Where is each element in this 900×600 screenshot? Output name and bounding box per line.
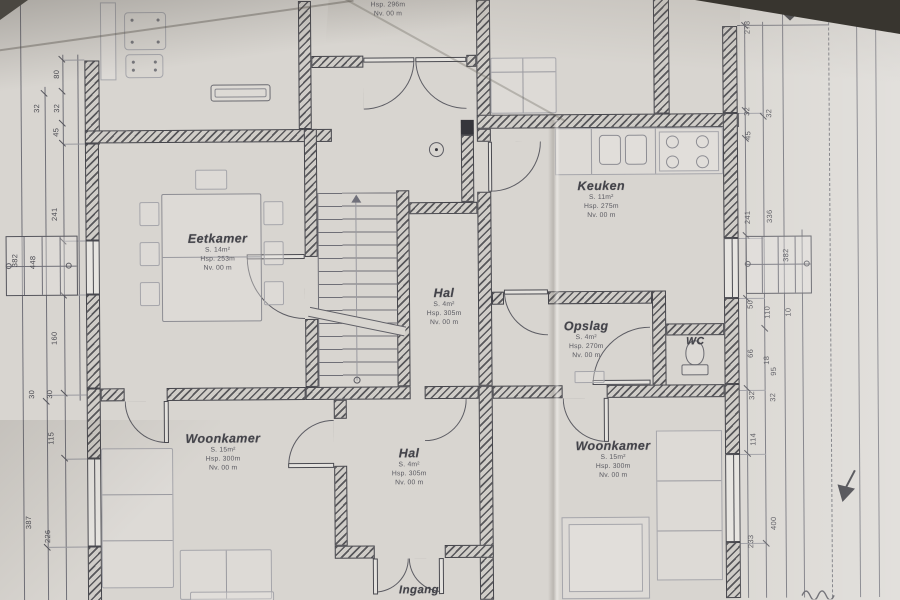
room-label-keuken: Keuken S. 11m² Hsp. 275m Nv. 00 m: [577, 179, 625, 220]
chair: [263, 201, 283, 225]
dimension-line: [77, 55, 80, 401]
room-label-top: Hsp. 296m Nv. 00 m: [371, 0, 406, 18]
dimension-label: 32: [768, 384, 777, 410]
dimension-label: 226: [43, 523, 52, 549]
room-level: Nv. 00 m: [371, 9, 406, 18]
entrance-label: Ingang: [399, 584, 439, 596]
window: [87, 458, 102, 546]
wall-segment: [466, 55, 476, 67]
room-label-woonkamer-left: Woonkamer S. 15m² Hsp. 300m Nv. 00 m: [185, 431, 260, 473]
dimension-label: 400: [769, 510, 778, 536]
wall-segment: [85, 143, 100, 240]
wall-segment: [298, 1, 312, 129]
door-arc: [504, 291, 548, 335]
dimension-label: 110: [763, 299, 772, 325]
toilet-tank: [681, 364, 708, 375]
column: [461, 120, 474, 135]
chair: [264, 241, 284, 265]
wall-segment: [479, 386, 494, 600]
room-height: Hsp. 253m: [188, 254, 248, 263]
sink-basin: [625, 135, 647, 165]
dimension-label: 66: [746, 340, 755, 366]
window-sill: [210, 84, 270, 101]
wall-segment: [335, 546, 375, 559]
door-arc: [425, 399, 467, 441]
dimension-label: 32: [32, 95, 41, 121]
scribble: [800, 585, 842, 599]
dimension-line: [63, 144, 85, 145]
dimension-line: [62, 55, 67, 600]
sink-basin: [599, 135, 621, 165]
wall-segment: [607, 384, 725, 398]
window: [724, 238, 739, 298]
dimension-label: 50: [745, 291, 754, 317]
door-arc: [415, 60, 466, 109]
room-height: Hsp. 275m: [578, 202, 626, 211]
dimension-label: 241: [743, 204, 752, 230]
door-leaf: [415, 57, 466, 62]
room-label-opslag: Opslag S. 4m² Hsp. 270m Nv. 00 m: [564, 319, 609, 360]
dimension-label: 45: [743, 122, 752, 148]
radiator: [574, 371, 604, 383]
door-leaf: [363, 57, 414, 62]
dimension-label: 95: [769, 358, 778, 384]
dimension-label: 30: [45, 381, 54, 407]
chair: [139, 202, 159, 226]
dimension-label: 336: [765, 203, 774, 229]
down-arrow-icon: [834, 484, 855, 504]
window: [725, 454, 741, 542]
wall-segment: [86, 294, 101, 388]
stair-start-marker: [354, 377, 361, 384]
sofa: [101, 448, 174, 588]
door-leaf: [604, 398, 609, 442]
wall-segment: [477, 129, 491, 142]
room-level: Nv. 00 m: [564, 351, 609, 360]
dimension-label: 32: [742, 98, 751, 124]
door-arc: [288, 420, 334, 466]
wall-segment: [334, 466, 348, 546]
door-leaf: [288, 463, 334, 468]
wall-unit: [656, 430, 723, 580]
table-inner: [569, 524, 643, 593]
room-area: S. 4m²: [427, 300, 462, 309]
door-leaf: [504, 289, 548, 294]
dimension-label: 32: [764, 100, 773, 126]
room-name: Woonkamer: [185, 431, 260, 446]
wall-segment: [334, 400, 347, 419]
wall-segment: [726, 542, 741, 598]
room-label-woonkamer-right: Woonkamer S. 15m² Hsp. 300m Nv. 00 m: [576, 439, 651, 481]
ceiling-light-dot: [435, 148, 438, 151]
door-arc: [491, 141, 541, 191]
staircase: [317, 192, 398, 387]
dimension-label: 115: [46, 425, 55, 451]
window: [86, 240, 100, 294]
wall-segment: [87, 388, 101, 458]
dimension-endpoint: [745, 261, 751, 267]
wall-segment: [493, 385, 563, 398]
wall-segment: [167, 387, 306, 401]
wall-segment: [652, 290, 667, 397]
wall-segment: [461, 135, 474, 202]
armchair: [124, 12, 166, 50]
room-name: Keuken: [577, 179, 625, 193]
wall-segment: [548, 291, 652, 305]
door-leaf: [164, 401, 169, 443]
door-arc: [125, 401, 167, 443]
armchair: [125, 54, 163, 78]
dimension-label: 32: [747, 382, 756, 408]
dimension-label: 10: [784, 299, 793, 325]
room-height: Hsp. 305m: [392, 469, 427, 478]
wall-segment: [653, 0, 670, 114]
north-triangle-icon: [774, 6, 806, 21]
dimension-label: 241: [50, 201, 59, 227]
dimension-label: 45: [51, 119, 60, 145]
chair: [140, 242, 160, 266]
dimension-endpoint: [804, 260, 810, 266]
door-leaf: [488, 142, 492, 192]
room-level: Nv. 00 m: [186, 463, 261, 473]
door-leaf: [439, 558, 444, 594]
room-name: Woonkamer: [576, 439, 651, 454]
entrance-text: Ingang: [399, 584, 439, 596]
room-name: Hal: [392, 446, 427, 460]
door-arc: [563, 398, 607, 442]
dimension-line: [740, 454, 766, 455]
room-height: Hsp. 305m: [427, 309, 462, 318]
cabinet: [100, 2, 117, 80]
wall-segment: [445, 545, 494, 558]
room-label-hal-upper: Hal S. 4m² Hsp. 305m Nv. 00 m: [427, 286, 462, 327]
stair-up-arrow-icon: [351, 195, 361, 203]
wall-segment: [725, 384, 740, 454]
wall-segment: [305, 319, 318, 387]
dimension-label: 30: [27, 381, 36, 407]
dimension-line: [48, 547, 88, 548]
wall-segment: [425, 386, 479, 399]
chair: [264, 281, 284, 305]
rug: [190, 591, 274, 600]
wall-segment: [723, 113, 739, 238]
room-label-eetkamer: Eetkamer S. 14m² Hsp. 253m Nv. 00 m: [188, 231, 248, 272]
wall-segment: [311, 56, 363, 68]
dimension-line: [62, 60, 84, 61]
stove-burner-icon: [696, 155, 709, 168]
stove-burner-icon: [666, 155, 679, 168]
chair: [195, 170, 227, 190]
wall-segment: [304, 129, 318, 257]
dashed-reference-line: [828, 0, 833, 597]
room-level: Nv. 00 m: [576, 471, 651, 481]
wall-segment: [722, 26, 738, 113]
wall-segment: [409, 202, 477, 214]
room-height: Hsp. 270m: [564, 342, 609, 351]
dimension-endpoint: [66, 263, 72, 269]
wall-segment: [88, 546, 102, 600]
wall-segment: [306, 386, 411, 400]
wall-segment: [724, 298, 740, 384]
floor-plan-sheet: Hsp. 296m Nv. 00 m Eetkamer S. 14m² Hsp.…: [0, 0, 900, 600]
room-area: S. 4m²: [392, 460, 427, 469]
room-name: Eetkamer: [188, 231, 248, 245]
wall-segment: [101, 388, 125, 401]
room-level: Nv. 00 m: [578, 211, 626, 220]
wall-segment: [492, 292, 504, 305]
dimension-label: 80: [52, 61, 61, 87]
room-name: Opslag: [564, 319, 609, 333]
dimension-label: 382: [10, 248, 19, 274]
room-name: Hal: [427, 286, 462, 300]
dimension-line: [65, 459, 87, 460]
room-area: S. 11m²: [577, 193, 625, 202]
room-label-wc: WC: [686, 335, 704, 347]
dimension-label: 233: [746, 528, 755, 554]
dimension-label: 160: [50, 325, 59, 351]
room-height: Hsp. 296m: [371, 0, 406, 9]
dimension-label: 278: [743, 14, 752, 40]
wall-segment: [477, 192, 492, 386]
dimension-line: [875, 0, 880, 597]
room-label-hal-lower: Hal S. 4m² Hsp. 305m Nv. 00 m: [392, 446, 427, 487]
room-level: Nv. 00 m: [188, 263, 248, 272]
dimension-label: 387: [24, 509, 33, 535]
door-arc: [363, 60, 414, 109]
dimension-label: 448: [28, 249, 37, 275]
chair: [140, 282, 160, 306]
dimension-label: 382: [781, 242, 790, 268]
stove-burner-icon: [696, 135, 709, 148]
plan-drawing: Hsp. 296m Nv. 00 m Eetkamer S. 14m² Hsp.…: [0, 0, 900, 600]
room-name: WC: [686, 335, 704, 347]
dimension-line: [856, 0, 861, 597]
wall-segment: [476, 0, 491, 129]
stove-burner-icon: [666, 135, 679, 148]
room-level: Nv. 00 m: [427, 318, 462, 327]
room-area: S. 14m²: [188, 245, 248, 254]
dimension-label: 32: [52, 95, 61, 121]
room-level: Nv. 00 m: [392, 478, 427, 487]
wall-segment: [666, 323, 724, 335]
dimension-label: 114: [748, 426, 757, 452]
door-leaf: [373, 559, 378, 595]
room-area: S. 4m²: [564, 333, 609, 342]
wall-segment: [85, 129, 332, 144]
